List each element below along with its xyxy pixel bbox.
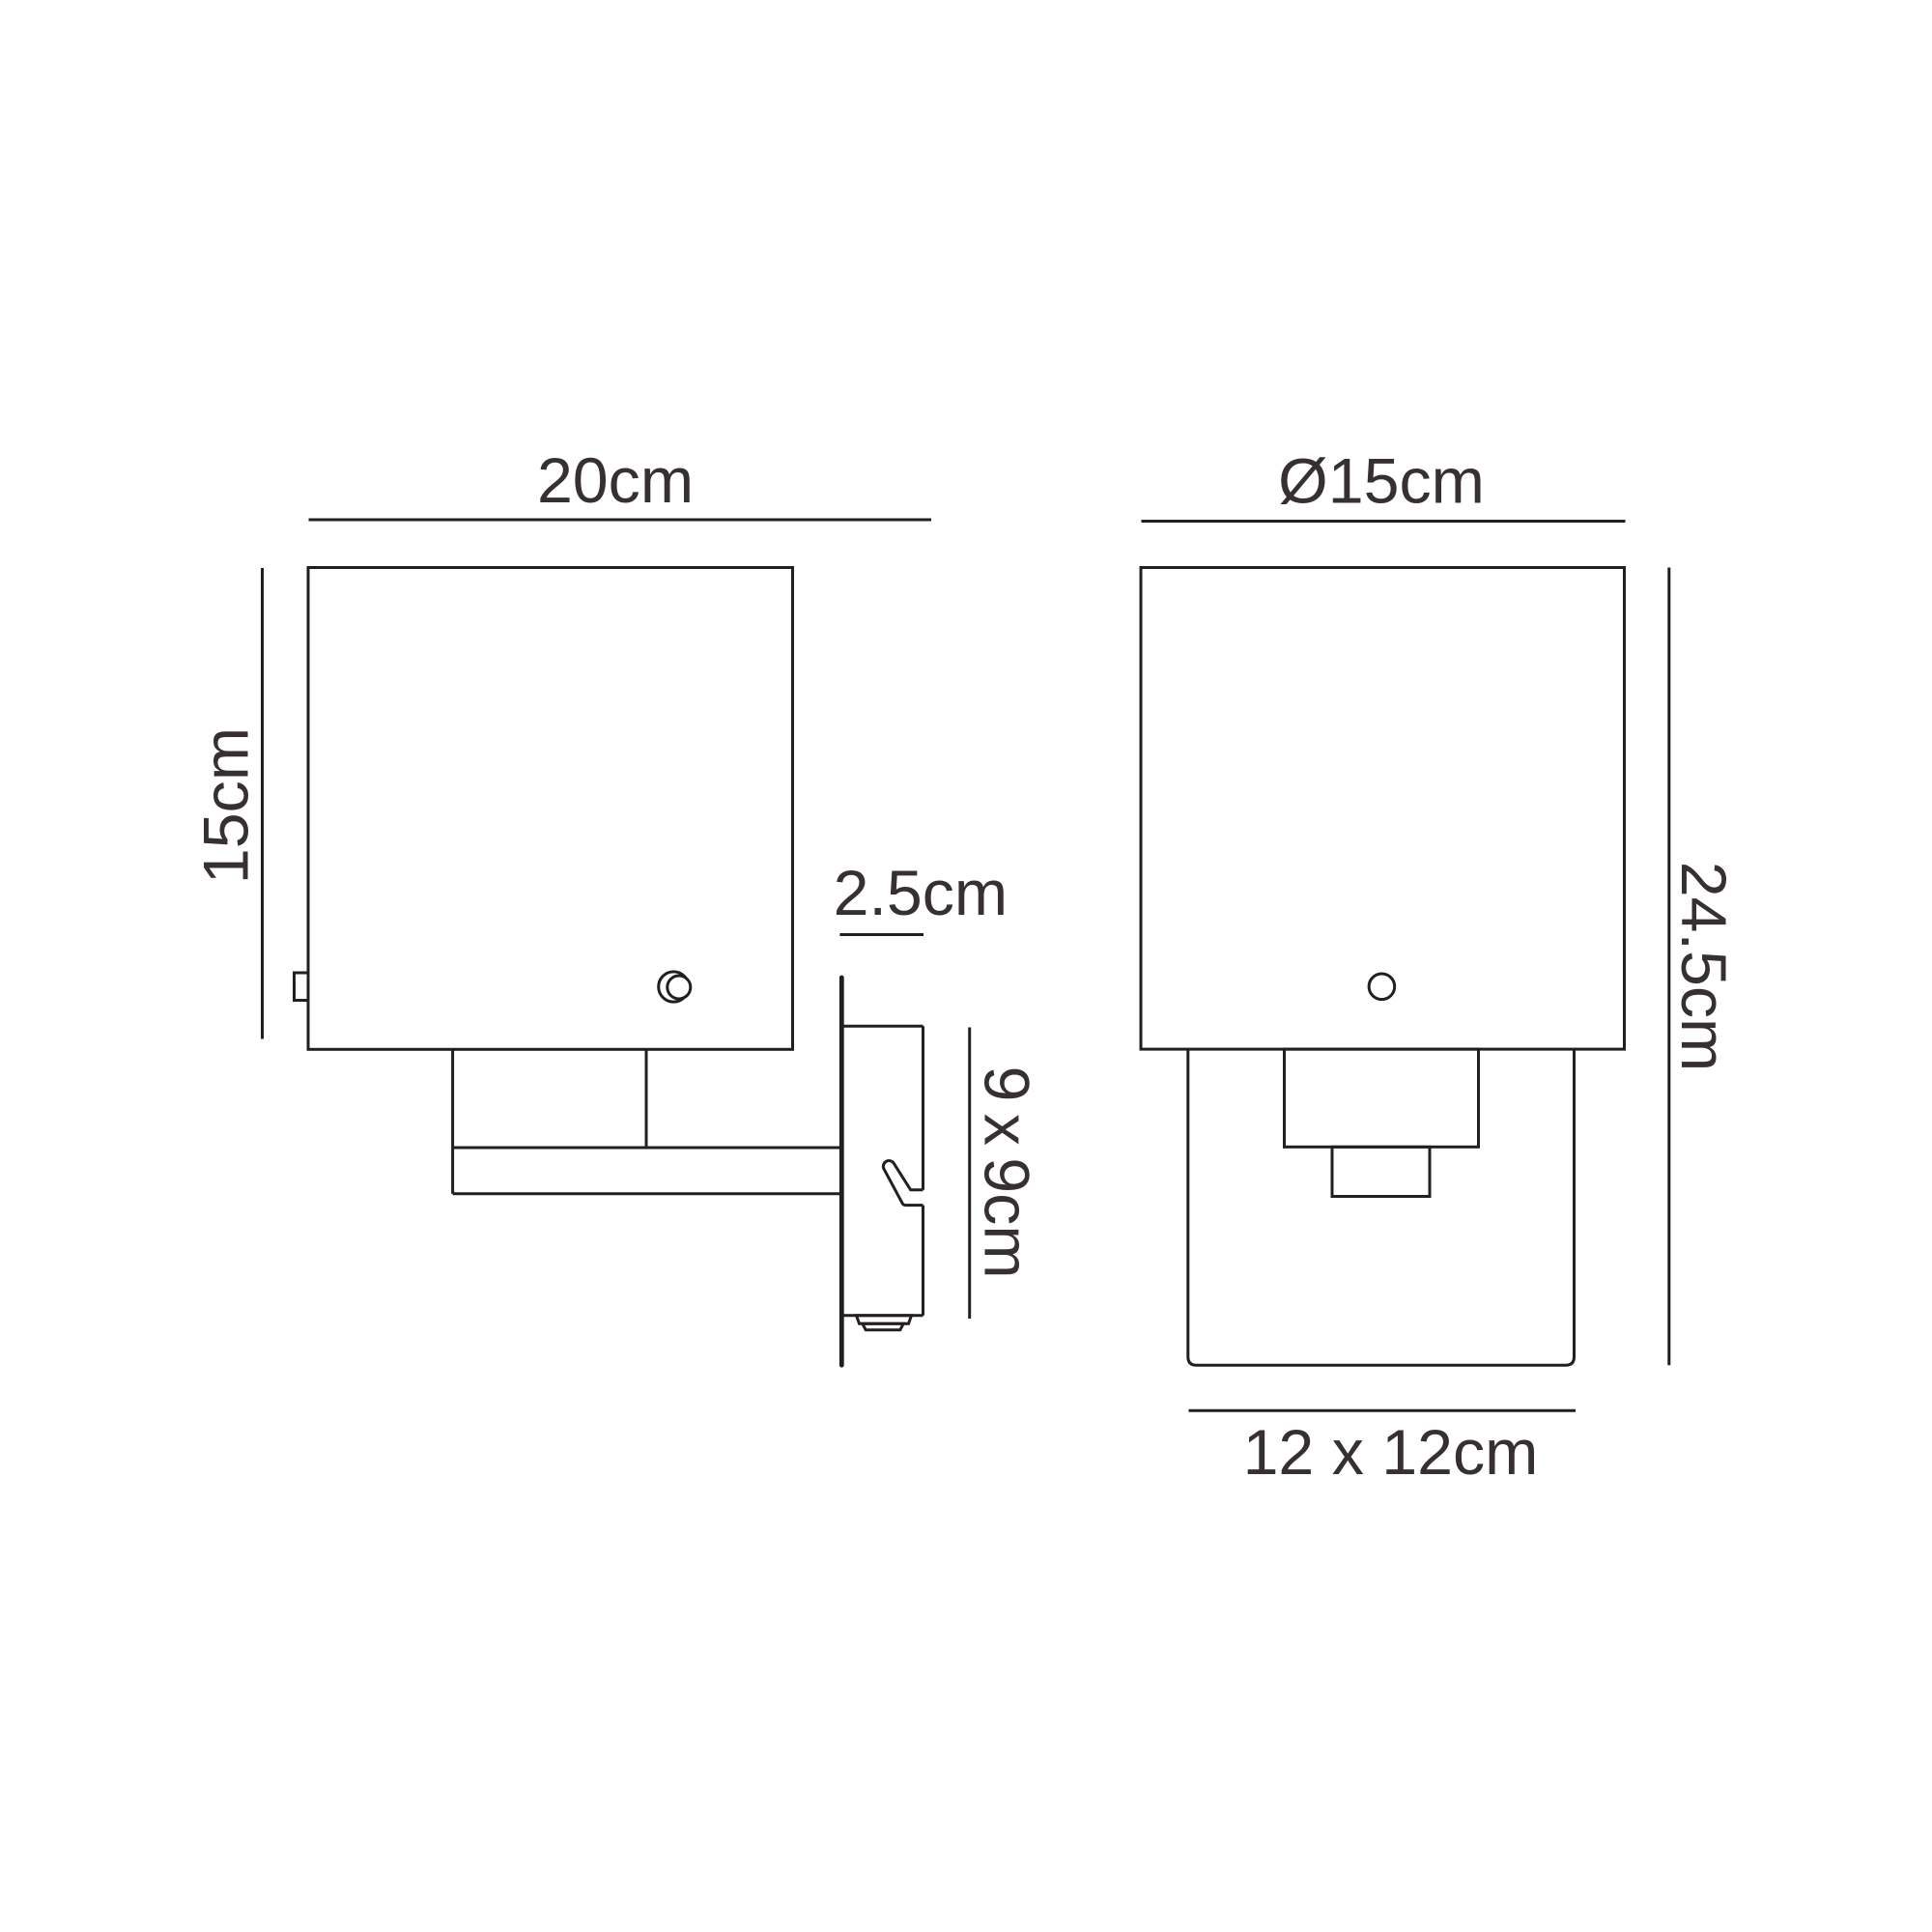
svg-text:Ø15cm: Ø15cm xyxy=(1278,446,1485,518)
svg-text:24.5cm: 24.5cm xyxy=(1667,862,1739,1071)
svg-text:2.5cm: 2.5cm xyxy=(834,858,1009,929)
svg-text:9 x 9cm: 9 x 9cm xyxy=(971,1065,1042,1278)
svg-text:15cm: 15cm xyxy=(191,727,263,884)
svg-text:12 x 12cm: 12 x 12cm xyxy=(1243,1417,1539,1489)
svg-text:20cm: 20cm xyxy=(537,445,694,517)
